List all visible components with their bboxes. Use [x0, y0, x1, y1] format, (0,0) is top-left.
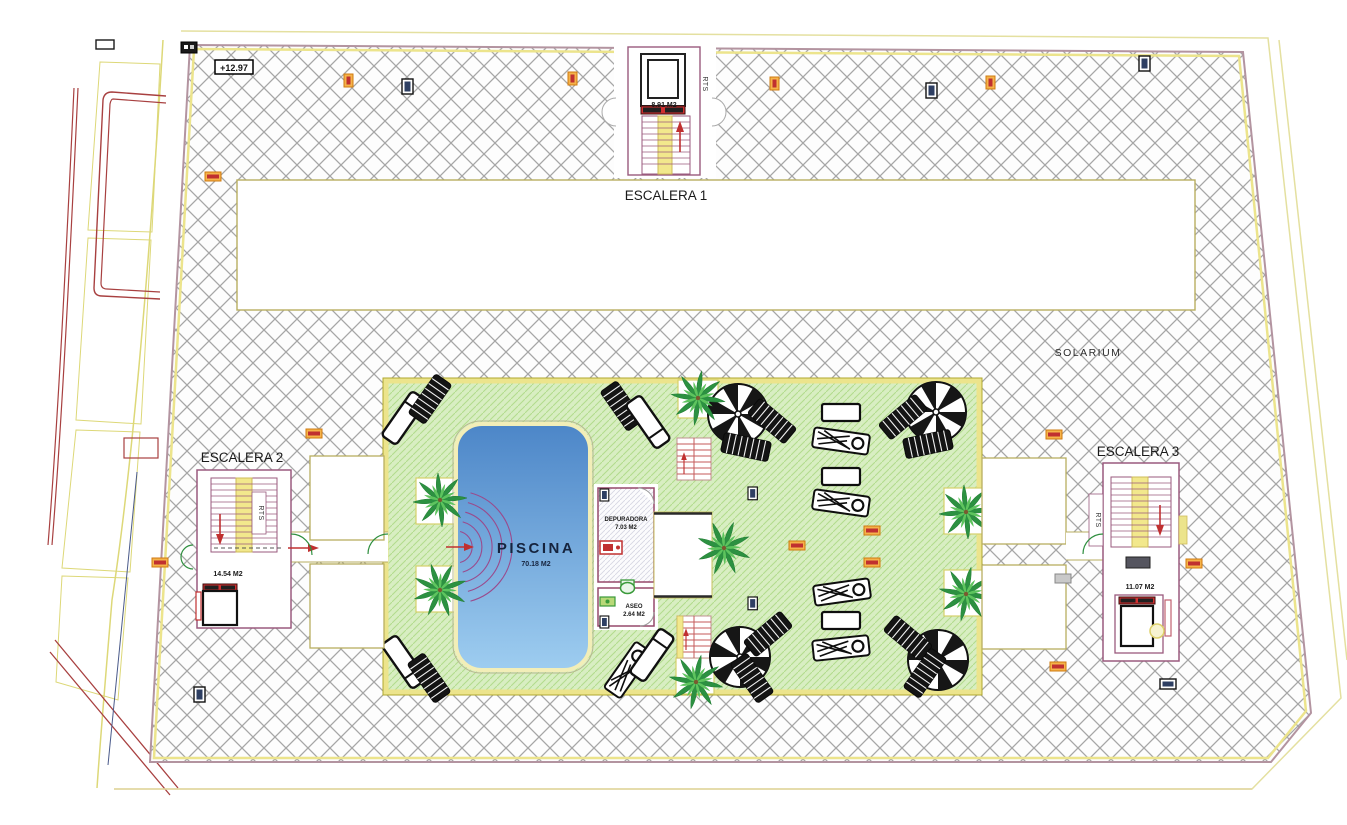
level-marker-label: +12.97: [220, 63, 248, 73]
stairs-icon: [1111, 477, 1171, 547]
sink-icon: [600, 597, 615, 606]
blue-marker-icon: [194, 687, 205, 702]
orange-marker-icon: [986, 76, 995, 89]
orange-marker-icon: [864, 526, 880, 535]
level-chip: [1126, 557, 1150, 568]
blue-marker-icon: [1160, 679, 1176, 689]
orange-marker-icon: [205, 172, 221, 181]
escalera2-title: ESCALERA 2: [201, 450, 284, 465]
gray-marker-icon: [1055, 574, 1071, 583]
piscina-title: PISCINA: [497, 540, 575, 557]
orange-marker-icon: [306, 429, 322, 438]
blue-marker-icon: [748, 597, 757, 610]
escalera2-block: RTS 14.54 M2 ESCALERA 2: [181, 450, 388, 648]
deck-stairs-bottom: [677, 616, 711, 658]
depuradora-title: DEPURADORA: [604, 517, 648, 523]
aseo-area-label: 2.64 M2: [623, 612, 645, 618]
level-marker: +12.97: [215, 60, 253, 74]
blue-marker-icon: [402, 79, 413, 94]
escalera1-rts-label: RTS: [701, 76, 708, 91]
depuradora-area-label: 7.03 M2: [615, 525, 637, 531]
pool: PISCINA 70.18 M2: [446, 421, 593, 673]
piscina-area-label: 70.18 M2: [521, 561, 550, 568]
id-badge: [181, 42, 197, 53]
orange-marker-icon: [789, 541, 805, 550]
orange-marker-icon: [770, 77, 779, 90]
blue-marker-icon: [1139, 56, 1150, 71]
orange-marker-icon: [1046, 430, 1062, 439]
orange-marker-icon: [1186, 559, 1202, 568]
table-icon: [822, 612, 860, 629]
upper-roof-band: [237, 180, 1195, 310]
table-icon: [822, 468, 860, 485]
escalera3-title: ESCALERA 3: [1097, 444, 1180, 459]
escalera2-area-label: 14.54 M2: [213, 571, 242, 578]
toilet-icon: [621, 580, 635, 594]
solarium-label: SOLARIUM: [1055, 347, 1122, 359]
drain-marker-icon: [1150, 624, 1164, 638]
elevator-icon: [1115, 595, 1171, 653]
deck-white-room: [654, 512, 712, 598]
escalera3-area-label: 11.07 M2: [1126, 584, 1155, 591]
escalera2-rts-label: RTS: [257, 505, 264, 520]
aseo-title: ASEO: [625, 604, 642, 610]
escalera3-rts-label: RTS: [1094, 512, 1101, 527]
elevator-icon: [196, 584, 237, 625]
orange-marker-icon: [864, 558, 880, 567]
orange-marker-icon: [568, 72, 577, 85]
depuradora-block: DEPURADORA 7.03 M2 ASEO 2.64 M2: [594, 484, 658, 630]
stairs-icon: [642, 116, 690, 174]
pump-icon: [600, 541, 622, 554]
deck-stairs-top: [677, 438, 711, 480]
blue-marker-icon: [748, 487, 757, 500]
floor-plan: +12.97 RTS 8.91 M2: [0, 0, 1347, 825]
escalera1-title: ESCALERA 1: [625, 188, 708, 203]
orange-marker-icon: [152, 558, 168, 567]
escalera1-area-label: 8.91 M2: [651, 102, 676, 109]
floor-plan-canvas: +12.97 RTS 8.91 M2: [0, 0, 1347, 825]
orange-marker-icon: [344, 74, 353, 87]
orange-marker-icon: [1050, 662, 1066, 671]
blue-marker-icon: [926, 83, 937, 98]
table-icon: [822, 404, 860, 421]
